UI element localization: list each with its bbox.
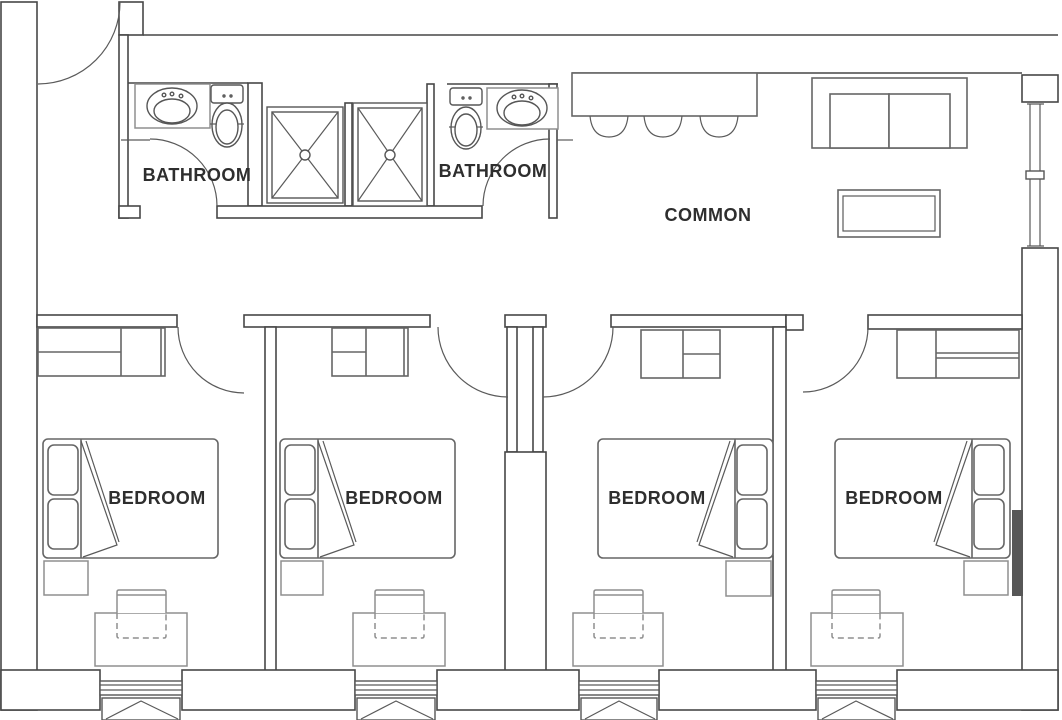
wall-center-column-cap — [505, 315, 546, 327]
entry-door-arc-icon — [38, 2, 120, 84]
wall-bedroom1-top — [37, 315, 177, 327]
closet-icon — [332, 328, 408, 376]
pillow-icon — [974, 445, 1004, 495]
wall-right-upper-block — [1022, 75, 1058, 102]
shower-icon — [267, 107, 343, 203]
sink-icon — [135, 84, 210, 128]
desk-icon — [353, 613, 445, 666]
wall-between-showers — [345, 103, 352, 206]
wall-right-exterior — [1022, 248, 1058, 710]
stool-icon — [644, 116, 682, 137]
room-label-bedroom-4: BEDROOM — [845, 488, 943, 508]
wall-bottom-seg2 — [182, 670, 355, 710]
window-icon — [816, 681, 897, 720]
wall-bathroom1-door-jamb — [119, 206, 140, 218]
bathroom1-fixtures — [135, 84, 343, 203]
sofa-icon — [812, 78, 967, 148]
nightstand-icon — [44, 561, 88, 595]
bedroom4-door-arc-icon — [803, 327, 868, 392]
wall-entry-pillar — [119, 2, 143, 35]
wall-bottom-seg1 — [1, 670, 100, 710]
common-furniture — [572, 73, 967, 237]
wall-bathroom1-shower-divider — [248, 83, 262, 206]
room-label-bedroom-3: BEDROOM — [608, 488, 706, 508]
common-window-icon — [1026, 104, 1044, 246]
closet-icon — [641, 330, 720, 378]
pillow-icon — [285, 445, 315, 495]
pillow-icon — [285, 499, 315, 549]
desk-icon — [95, 613, 187, 666]
wall-partition-bed1-bed2 — [265, 327, 276, 672]
pillow-icon — [48, 499, 78, 549]
pillow-icon — [48, 445, 78, 495]
bathroom2-fixtures — [353, 88, 558, 206]
floor-plan-drawing: BATHROOM BATHROOM COMMON BEDROOM BEDROOM… — [0, 0, 1062, 720]
closet-icon — [38, 328, 165, 376]
desk-icon — [573, 613, 663, 666]
wall-bedroom2-top — [244, 315, 430, 327]
wall-bathroom-strip-bottom — [217, 206, 482, 218]
wall-bottom-seg4 — [659, 670, 816, 710]
wall-partition-bed3-bed4 — [773, 327, 786, 672]
wall-center-stem-left — [507, 327, 517, 452]
shower-icon — [353, 103, 427, 206]
bedroom2-door-arc-icon — [438, 327, 508, 397]
radiator-icon — [1012, 510, 1023, 596]
bedroom3-door-arc-icon — [543, 327, 613, 397]
pillow-icon — [737, 499, 767, 549]
closet-icon — [897, 330, 1019, 378]
pillow-icon — [737, 445, 767, 495]
wall-center-column — [505, 452, 546, 672]
window-icon — [100, 681, 182, 720]
wall-bottom-seg5 — [897, 670, 1058, 710]
room-label-bathroom-2: BATHROOM — [439, 161, 548, 181]
nightstand-icon — [964, 561, 1008, 595]
wall-bedroom4-top — [868, 315, 1022, 329]
nightstand-icon — [281, 561, 323, 595]
window-icon — [355, 681, 437, 720]
wall-bedroom3-top — [611, 315, 786, 327]
wall-center-stem-right — [533, 327, 543, 452]
window-icon — [579, 681, 659, 720]
wall-bathroom1-left — [119, 35, 128, 218]
stool-icon — [590, 116, 628, 137]
wall-bathroom2-shower-divider — [427, 84, 434, 206]
kitchen-counter-icon — [572, 73, 757, 116]
stool-icon — [700, 116, 738, 137]
room-label-common: COMMON — [665, 205, 752, 225]
floor-plan: BATHROOM BATHROOM COMMON BEDROOM BEDROOM… — [0, 0, 1062, 720]
desk-icon — [811, 613, 903, 666]
wall-left-exterior — [1, 2, 37, 710]
coffee-table-icon — [838, 190, 940, 237]
room-label-bedroom-1: BEDROOM — [108, 488, 206, 508]
wall-bottom-seg3 — [437, 670, 579, 710]
toilet-icon — [449, 88, 483, 149]
bedroom1-door-arc-icon — [178, 327, 244, 393]
nightstand-icon — [726, 561, 771, 596]
pillow-icon — [974, 499, 1004, 549]
window-mullion — [1026, 171, 1044, 179]
sink-icon — [487, 88, 558, 129]
room-label-bathroom-1: BATHROOM — [143, 165, 252, 185]
room-label-bedroom-2: BEDROOM — [345, 488, 443, 508]
toilet-icon — [210, 85, 244, 147]
wall-bedroom4-door-jamb — [786, 315, 803, 330]
